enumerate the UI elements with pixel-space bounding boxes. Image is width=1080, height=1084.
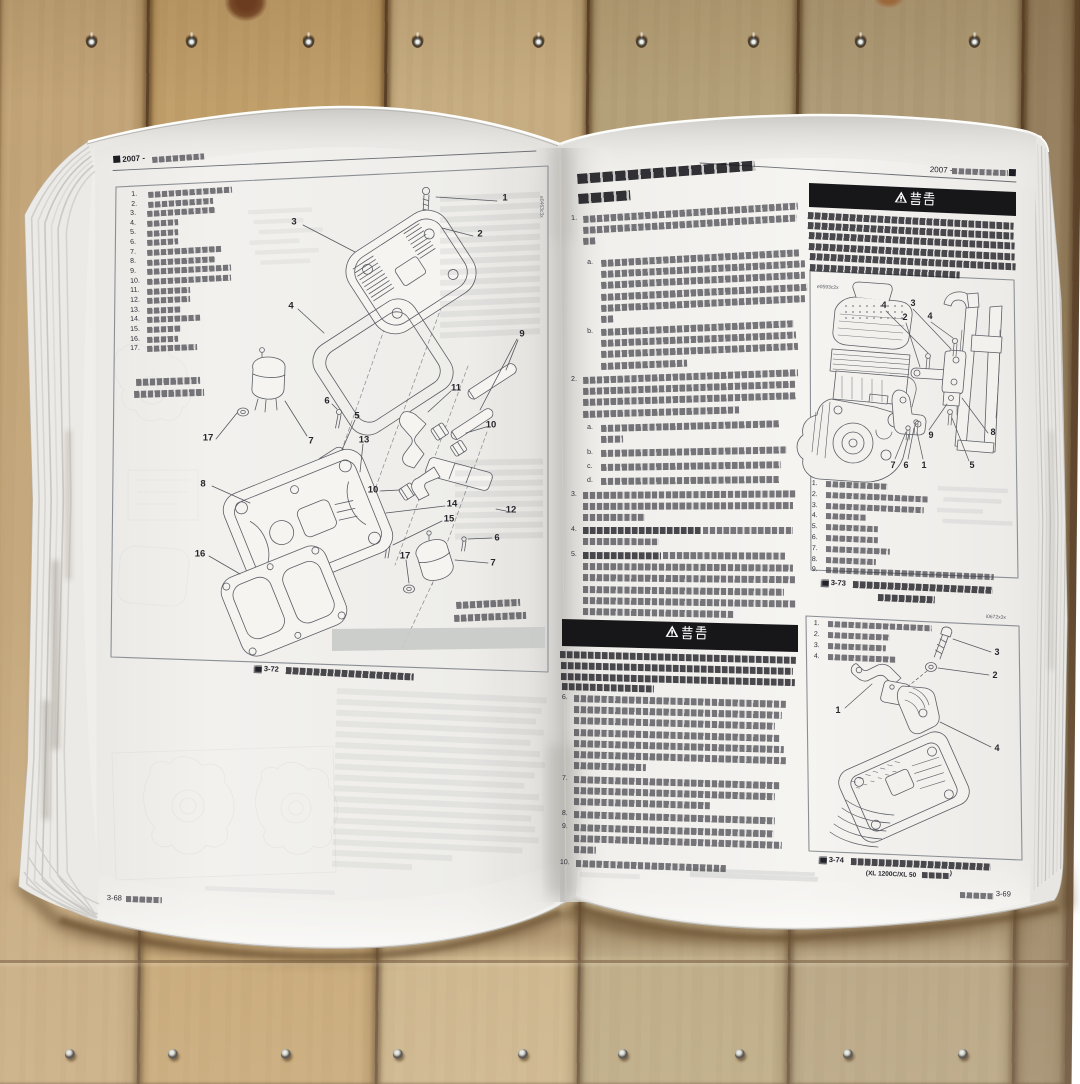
svg-text:1: 1 xyxy=(835,705,840,715)
svg-text:7: 7 xyxy=(890,460,895,470)
svg-text:6: 6 xyxy=(903,460,908,470)
svg-text:16: 16 xyxy=(195,549,206,560)
svg-text:1: 1 xyxy=(921,460,926,470)
svg-text:6: 6 xyxy=(324,396,329,407)
svg-text:5: 5 xyxy=(969,460,974,470)
svg-text:10: 10 xyxy=(486,420,497,431)
svg-text:9: 9 xyxy=(928,430,933,440)
svg-text:7: 7 xyxy=(308,436,313,447)
svg-text:10: 10 xyxy=(368,485,379,496)
svg-text:3: 3 xyxy=(994,647,999,657)
svg-text:3: 3 xyxy=(910,298,915,308)
svg-text:13: 13 xyxy=(359,435,370,446)
svg-text:4: 4 xyxy=(994,743,999,753)
svg-text:4: 4 xyxy=(927,311,932,321)
svg-text:8: 8 xyxy=(200,479,205,490)
svg-text:2: 2 xyxy=(902,312,907,322)
svg-text:5: 5 xyxy=(354,411,360,422)
svg-text:2: 2 xyxy=(992,670,997,680)
svg-text:4: 4 xyxy=(288,301,294,312)
svg-text:17: 17 xyxy=(400,551,411,562)
svg-text:8: 8 xyxy=(990,427,995,437)
svg-text:7: 7 xyxy=(490,558,495,569)
svg-text:4: 4 xyxy=(881,300,886,310)
svg-text:17: 17 xyxy=(203,433,214,444)
svg-text:11: 11 xyxy=(451,383,462,394)
svg-text:15: 15 xyxy=(444,514,455,525)
